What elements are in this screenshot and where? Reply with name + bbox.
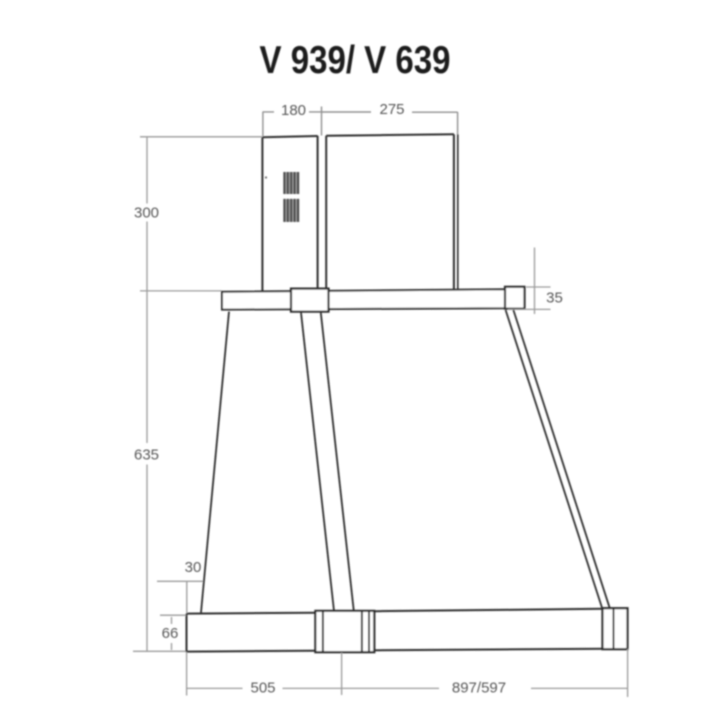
svg-text:66: 66 — [162, 625, 179, 642]
svg-text:897/597: 897/597 — [452, 680, 506, 697]
svg-text:505: 505 — [250, 680, 275, 697]
svg-text:35: 35 — [546, 290, 563, 307]
svg-text:180: 180 — [281, 102, 306, 119]
svg-text:300: 300 — [134, 205, 159, 222]
svg-text:275: 275 — [379, 101, 404, 118]
svg-text:635: 635 — [134, 447, 159, 464]
svg-text:30: 30 — [185, 559, 202, 576]
svg-text:V 939/ V 639: V 939/ V 639 — [260, 39, 451, 82]
